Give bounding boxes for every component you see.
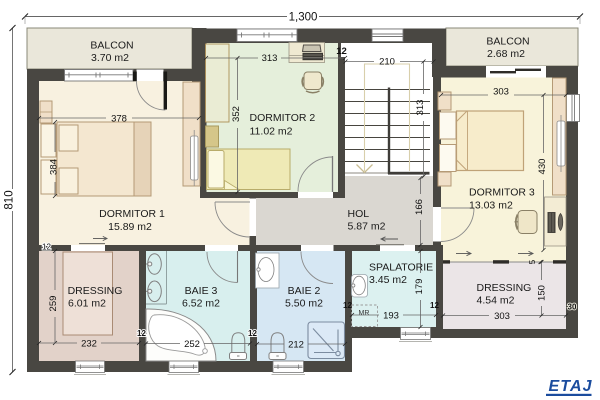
svg-text:303: 303	[494, 311, 510, 322]
svg-text:3.70 m2: 3.70 m2	[91, 52, 129, 64]
svg-text:BALCON: BALCON	[90, 40, 133, 52]
svg-text:3.45 m2: 3.45 m2	[369, 274, 407, 286]
svg-text:212: 212	[288, 340, 304, 351]
svg-text:313: 313	[262, 53, 278, 64]
svg-text:SPALATORIE: SPALATORIE	[369, 262, 433, 274]
svg-text:193: 193	[383, 311, 399, 322]
svg-text:12: 12	[248, 329, 257, 338]
svg-text:179: 179	[414, 279, 425, 295]
svg-text:313: 313	[415, 100, 426, 116]
svg-text:232: 232	[81, 339, 97, 350]
svg-text:303: 303	[493, 87, 509, 98]
svg-text:810: 810	[4, 190, 16, 209]
svg-text:5.87 m2: 5.87 m2	[348, 221, 386, 233]
svg-text:11.02 m2: 11.02 m2	[250, 126, 293, 138]
svg-text:6.01 m2: 6.01 m2	[68, 298, 106, 310]
svg-text:ETAJ: ETAJ	[549, 378, 593, 395]
svg-text:HOL: HOL	[348, 208, 370, 220]
svg-text:12: 12	[343, 301, 352, 310]
svg-text:DORMITOR 3: DORMITOR 3	[469, 187, 535, 199]
svg-text:1,300: 1,300	[289, 12, 318, 24]
svg-text:BAIE 2: BAIE 2	[288, 285, 321, 297]
svg-text:378: 378	[111, 114, 127, 125]
svg-text:DRESSING: DRESSING	[477, 282, 532, 294]
svg-text:5: 5	[528, 259, 537, 264]
svg-text:384: 384	[49, 159, 60, 175]
svg-text:13.03 m2: 13.03 m2	[469, 200, 513, 212]
svg-text:4.54 m2: 4.54 m2	[477, 295, 515, 307]
svg-text:210: 210	[379, 57, 395, 68]
svg-text:15.89 m2: 15.89 m2	[108, 221, 152, 233]
svg-text:DRESSING: DRESSING	[68, 285, 123, 297]
svg-text:6.52 m2: 6.52 m2	[182, 298, 220, 310]
svg-text:DORMITOR 2: DORMITOR 2	[250, 112, 316, 124]
svg-text:DORMITOR 1: DORMITOR 1	[99, 208, 165, 220]
svg-text:BALCON: BALCON	[486, 36, 529, 48]
svg-text:259: 259	[48, 296, 59, 312]
svg-text:30: 30	[568, 303, 577, 312]
svg-text:352: 352	[231, 106, 242, 122]
svg-text:BAIE 3: BAIE 3	[185, 285, 218, 297]
svg-text:5.50 m2: 5.50 m2	[285, 298, 323, 310]
svg-text:2.68 m2: 2.68 m2	[487, 48, 525, 60]
svg-text:166: 166	[414, 199, 425, 215]
svg-text:12: 12	[42, 243, 51, 252]
svg-text:252: 252	[184, 339, 200, 350]
svg-text:12: 12	[336, 46, 347, 57]
svg-text:MR: MR	[359, 310, 370, 317]
svg-text:12: 12	[137, 329, 146, 338]
svg-text:150: 150	[537, 285, 548, 301]
svg-text:430: 430	[537, 159, 548, 175]
svg-text:12: 12	[430, 301, 439, 310]
